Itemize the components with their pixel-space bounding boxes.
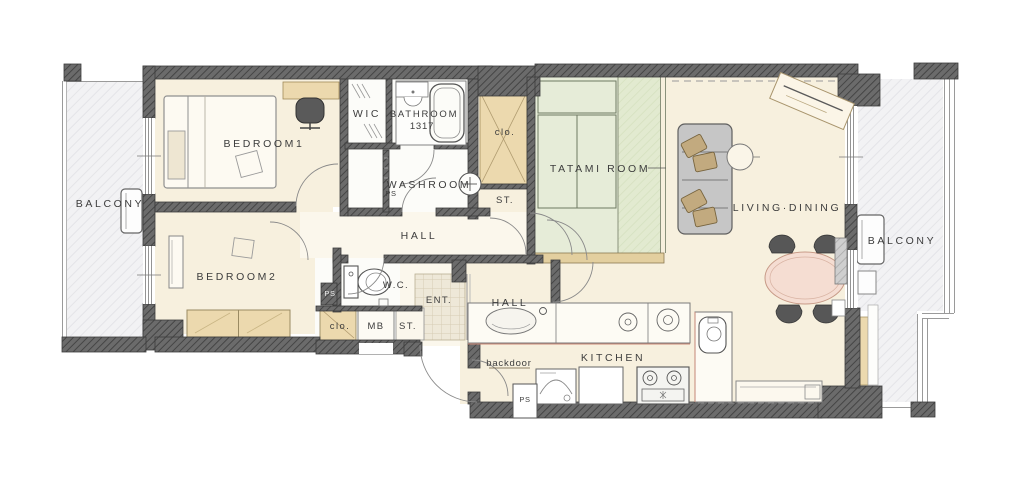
ac-unit-icon	[121, 189, 142, 233]
tv-board	[736, 381, 822, 402]
floor-plan-drawing: BALCONY BEDROOM1 WIC BATHROOM 1317 clo. …	[0, 0, 1024, 483]
walkin-closet-top	[480, 94, 527, 184]
small-cabinet	[832, 300, 845, 316]
label-st-top: ST.	[496, 195, 514, 206]
label-wic: WIC	[353, 108, 381, 120]
label-bathroom: BATHROOM	[390, 109, 459, 120]
label-wc: W.C.	[383, 280, 409, 291]
label-mb: MB	[367, 321, 384, 332]
label-living-dining: LIVING·DINING	[733, 202, 841, 214]
stove	[637, 367, 689, 404]
bedroom2-closet	[187, 310, 290, 337]
label-kitchen: KITCHEN	[581, 352, 645, 364]
dining-table	[765, 252, 845, 304]
column	[64, 64, 81, 81]
floor-plan-canvas: BALCONY BEDROOM1 WIC BATHROOM 1317 clo. …	[0, 0, 1024, 483]
sink-basin	[486, 308, 536, 334]
louver-unit	[835, 238, 847, 284]
label-ent: ENT.	[426, 295, 452, 306]
kitchen-counter	[468, 303, 690, 344]
side-panel	[860, 317, 868, 385]
kitchen-sink-unit	[695, 312, 732, 402]
label-hall: HALL	[401, 230, 438, 242]
column	[911, 402, 935, 417]
label-ps-kitchen: PS	[519, 395, 530, 404]
meter-box-opening	[359, 343, 393, 354]
label-backdoor: backdoor	[486, 358, 531, 369]
label-bedroom1: BEDROOM1	[224, 138, 305, 150]
label-balcony-left: BALCONY	[76, 198, 144, 210]
sofa	[678, 124, 732, 234]
label-bathroom-size: 1317	[410, 121, 434, 132]
label-washroom: WASHROOM	[387, 179, 472, 191]
pillow	[168, 131, 185, 179]
label-bedroom2: BEDROOM2	[197, 271, 278, 283]
label-balcony-right: BALCONY	[868, 235, 936, 247]
column	[914, 63, 958, 79]
label-ps-washroom: PS	[385, 189, 396, 198]
label-clo-bottom: clo.	[330, 321, 350, 332]
label-st-bottom: ST.	[399, 321, 417, 332]
fridge-space	[579, 367, 623, 404]
label-ps-wc: PS	[324, 289, 335, 298]
label-hall-lower: HALL	[492, 297, 529, 309]
desk	[283, 82, 339, 99]
label-tatami: TATAMI ROOM	[550, 163, 650, 175]
washing-machine	[536, 369, 576, 404]
bedroom2-desk	[169, 236, 183, 288]
label-clo-top: clo.	[495, 127, 515, 138]
